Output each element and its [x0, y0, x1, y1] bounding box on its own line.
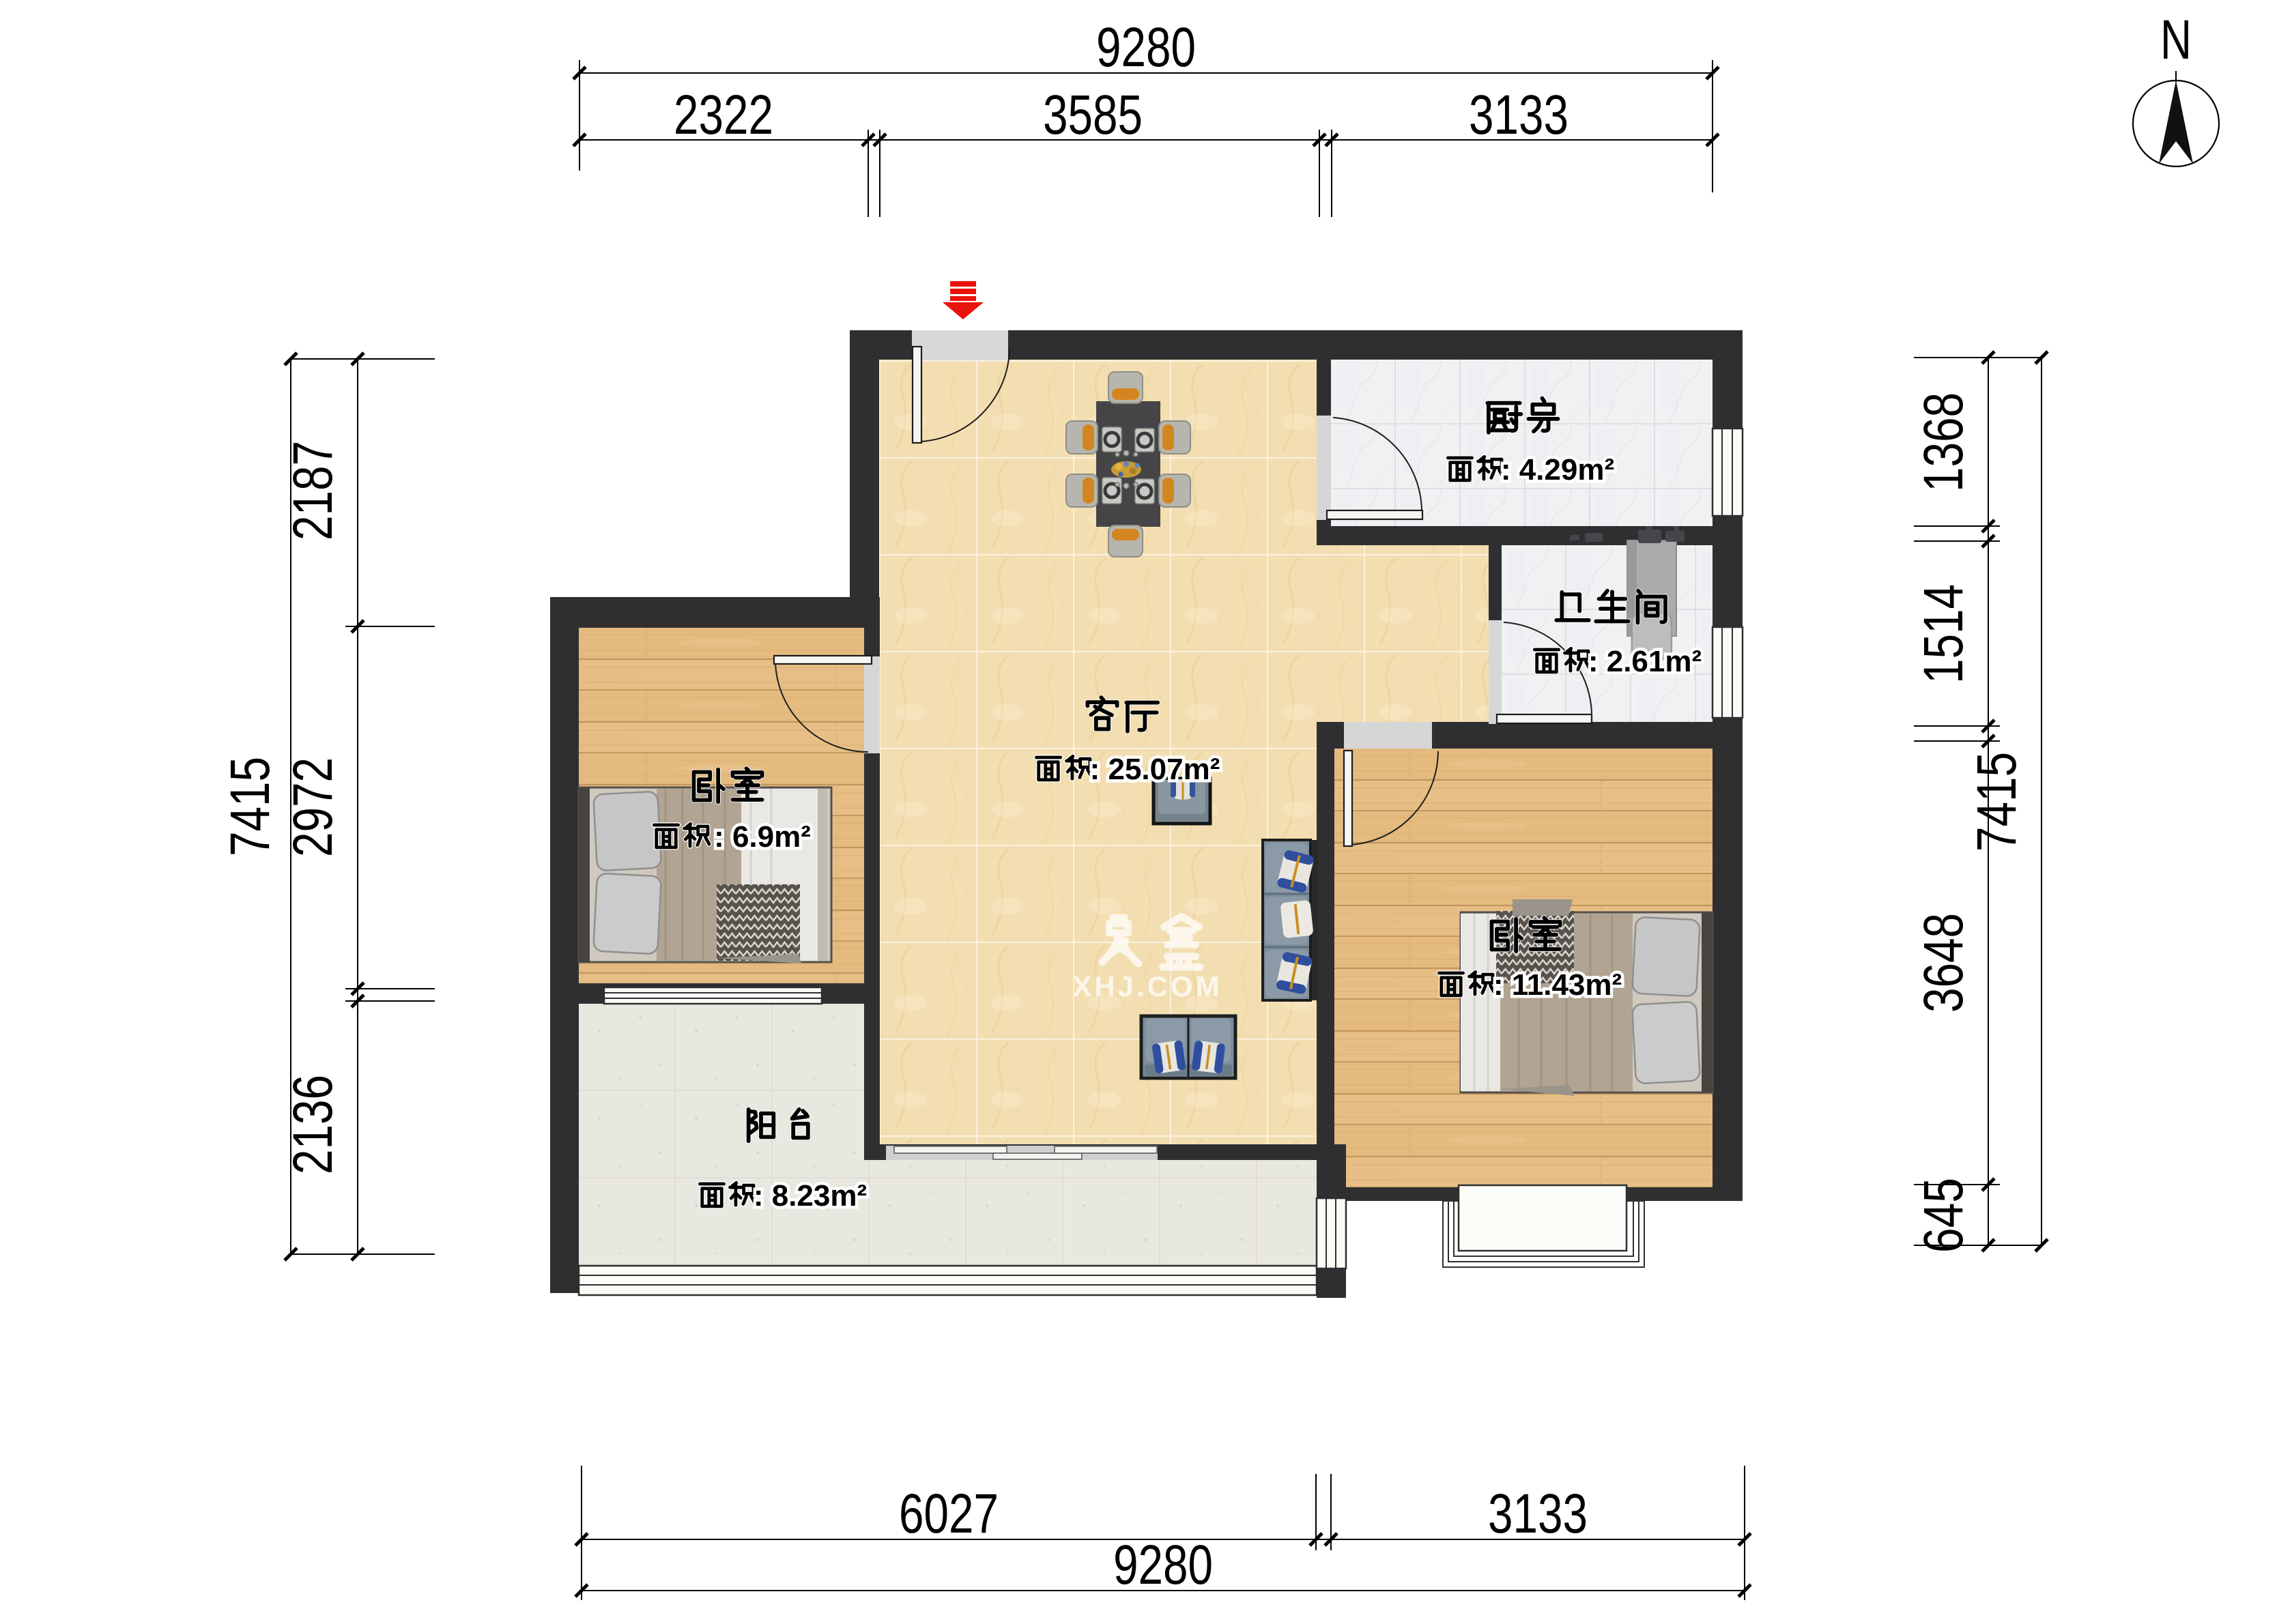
svg-text:N: N [2160, 9, 2192, 71]
svg-text:2187: 2187 [282, 441, 344, 540]
svg-text:3585: 3585 [1043, 84, 1143, 146]
svg-text:3133: 3133 [1469, 84, 1568, 146]
svg-text:6027: 6027 [899, 1483, 999, 1545]
svg-text:: 11.43m²: : 11.43m² [1493, 968, 1622, 1002]
svg-text:3648: 3648 [1913, 913, 1975, 1013]
svg-text:2972: 2972 [282, 757, 344, 857]
svg-text:2322: 2322 [674, 84, 773, 146]
svg-text:3133: 3133 [1488, 1483, 1588, 1545]
svg-text:: 6.9m²: : 6.9m² [714, 820, 811, 854]
svg-text:9280: 9280 [1113, 1534, 1213, 1596]
svg-text:1514: 1514 [1913, 584, 1975, 684]
svg-text:645: 645 [1913, 1178, 1975, 1253]
svg-text:1368: 1368 [1913, 392, 1975, 492]
svg-text:7415: 7415 [1966, 752, 2028, 852]
svg-text:XHJ.COM: XHJ.COM [1072, 970, 1222, 1002]
svg-text:2136: 2136 [282, 1075, 344, 1174]
svg-text:: 25.07m²: : 25.07m² [1090, 753, 1220, 786]
svg-text:9280: 9280 [1096, 16, 1196, 78]
svg-text:: 8.23m²: : 8.23m² [754, 1179, 867, 1213]
svg-text:7415: 7415 [219, 757, 281, 856]
svg-text:: 2.61m²: : 2.61m² [1588, 645, 1702, 678]
svg-text:: 4.29m²: : 4.29m² [1501, 453, 1614, 487]
